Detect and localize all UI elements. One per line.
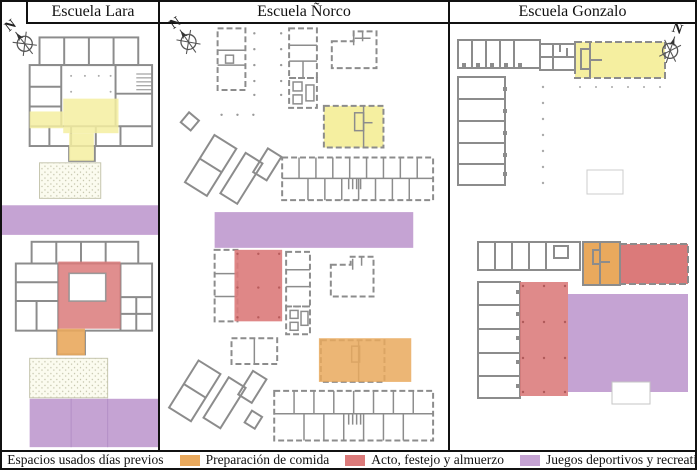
lara-overlay-sports-top [2,205,158,235]
lara-overlay-food-prep [57,329,85,356]
lara-overlay-event [58,262,120,329]
panel-escuela-gonzalo: Escuela Gonzalo N [450,2,695,450]
gonzalo-site-plan [450,2,695,450]
panel-escuela-lara: Escuela Lara N [2,2,160,450]
legend: Espacios usados días previos Preparación… [2,450,695,468]
panel-title-gonzalo: Escuela Gonzalo [450,2,695,24]
gonzalo-upper-floorplan [458,40,602,185]
norco-overlay-sports [215,212,414,248]
lara-patio-texture-top [40,163,101,199]
legend-label: Acto, festejo y almuerzo [371,452,504,468]
legend-item-previous-days: Espacios usados días previos [0,452,164,468]
norco-overlay-previous-days [324,106,384,148]
gonzalo-upper-column-dots [542,86,661,184]
gonzalo-upper-columns [462,63,522,176]
legend-label: Espacios usados días previos [7,452,163,468]
lara-overlay-sports-bottom [30,399,158,447]
legend-item-sports: Juegos deportivos y recreativos [520,452,697,468]
panel-title-text: Escuela Lara [51,3,134,20]
panel-escuela-norco: Escuela Ñorco N [160,2,450,450]
legend-label: Preparación de comida [206,452,330,468]
panel-title-text: Escuela Ñorco [257,3,351,20]
norco-site-plan [160,2,448,450]
norco-upper-column-dots [220,32,282,116]
lara-patio-texture-bottom [30,358,108,397]
lara-column-dots [70,75,111,93]
figure-canvas: Escuela Lara N [0,0,697,470]
panel-title-lara: Escuela Lara [26,2,158,24]
panel-title-text: Escuela Gonzalo [519,3,627,20]
legend-swatch-orange [180,455,200,466]
legend-item-event: Acto, festejo y almuerzo [345,452,504,468]
norco-overlay-food-prep [319,338,411,382]
norco-lower-rotated-buildings [169,360,266,428]
gonzalo-overlay-event-top [620,244,688,284]
norco-overlay-event [234,250,282,322]
gonzalo-overlay-event-band [520,282,568,396]
legend-swatch-purple [520,455,540,466]
lara-site-plan [2,2,158,450]
norco-upper-rotated-buildings [181,112,282,203]
gonzalo-faint-structure [587,170,623,194]
lara-overlay-previous-days [30,99,119,161]
gonzalo-court-structure [612,382,650,404]
gonzalo-overlay-sports [568,294,688,392]
panel-title-norco: Escuela Ñorco [160,2,448,24]
gonzalo-overlay-food-prep [583,242,620,285]
legend-label: Juegos deportivos y recreativos [546,452,697,468]
legend-swatch-yellow [0,455,1,466]
legend-item-food-prep: Preparación de comida [180,452,330,468]
legend-swatch-red [345,455,365,466]
